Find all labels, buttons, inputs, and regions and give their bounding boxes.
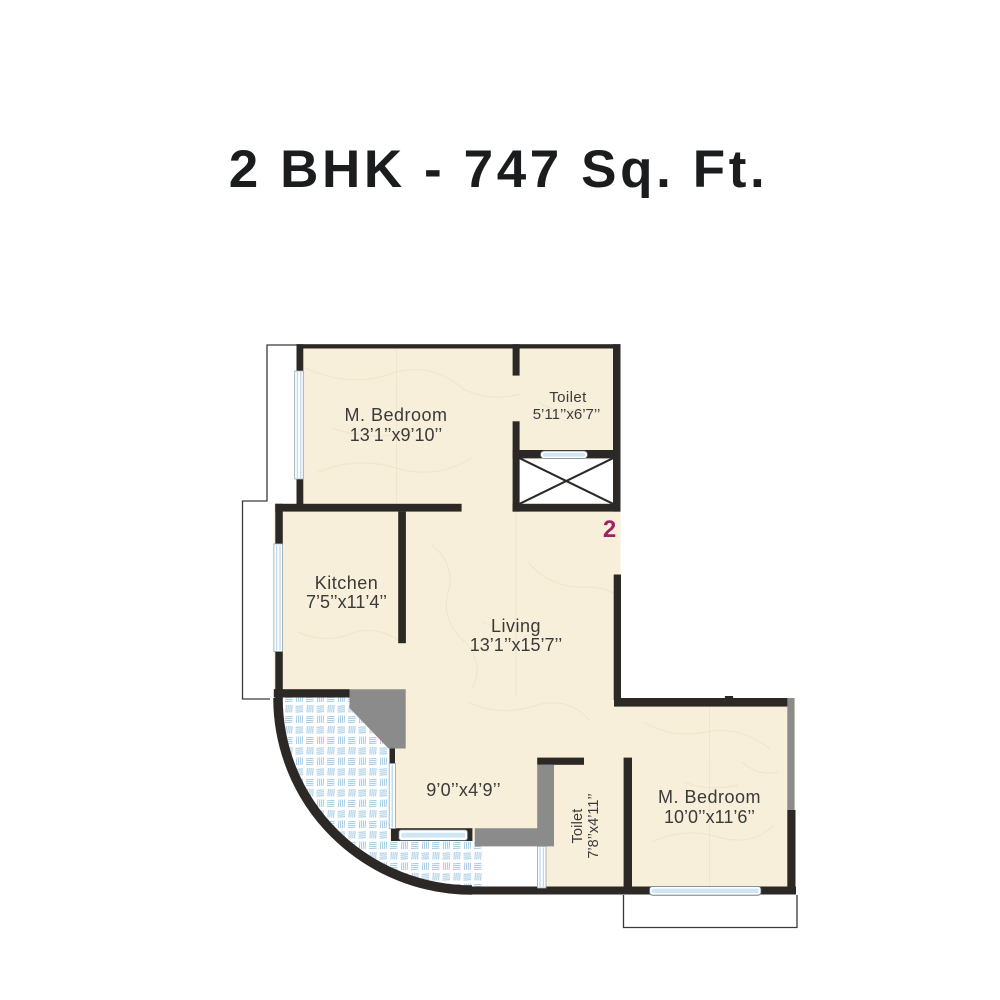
svg-text:2 BHK - 747 Sq. Ft.: 2 BHK - 747 Sq. Ft. [229, 140, 769, 199]
svg-text:9’0’’x4’9’’: 9’0’’x4’9’’ [426, 780, 501, 800]
svg-text:13’1’’x15’7’’: 13’1’’x15’7’’ [470, 635, 562, 655]
svg-text:2: 2 [603, 516, 616, 543]
svg-text:Toilet: Toilet [570, 808, 586, 843]
svg-text:Kitchen: Kitchen [315, 573, 379, 593]
svg-text:5’11’’x6’7’’: 5’11’’x6’7’’ [533, 406, 601, 423]
svg-text:10’0’’x11’6’’: 10’0’’x11’6’’ [664, 807, 755, 827]
svg-text:M. Bedroom: M. Bedroom [658, 787, 761, 807]
svg-text:M. Bedroom: M. Bedroom [344, 405, 447, 425]
svg-text:Living: Living [491, 616, 541, 636]
svg-text:Toilet: Toilet [549, 389, 587, 406]
svg-text:7’8’’x4’11’’: 7’8’’x4’11’’ [586, 793, 602, 858]
svg-text:13’1’’x9’10’’: 13’1’’x9’10’’ [350, 425, 442, 445]
svg-text:7’5’’x11’4’’: 7’5’’x11’4’’ [306, 592, 387, 612]
